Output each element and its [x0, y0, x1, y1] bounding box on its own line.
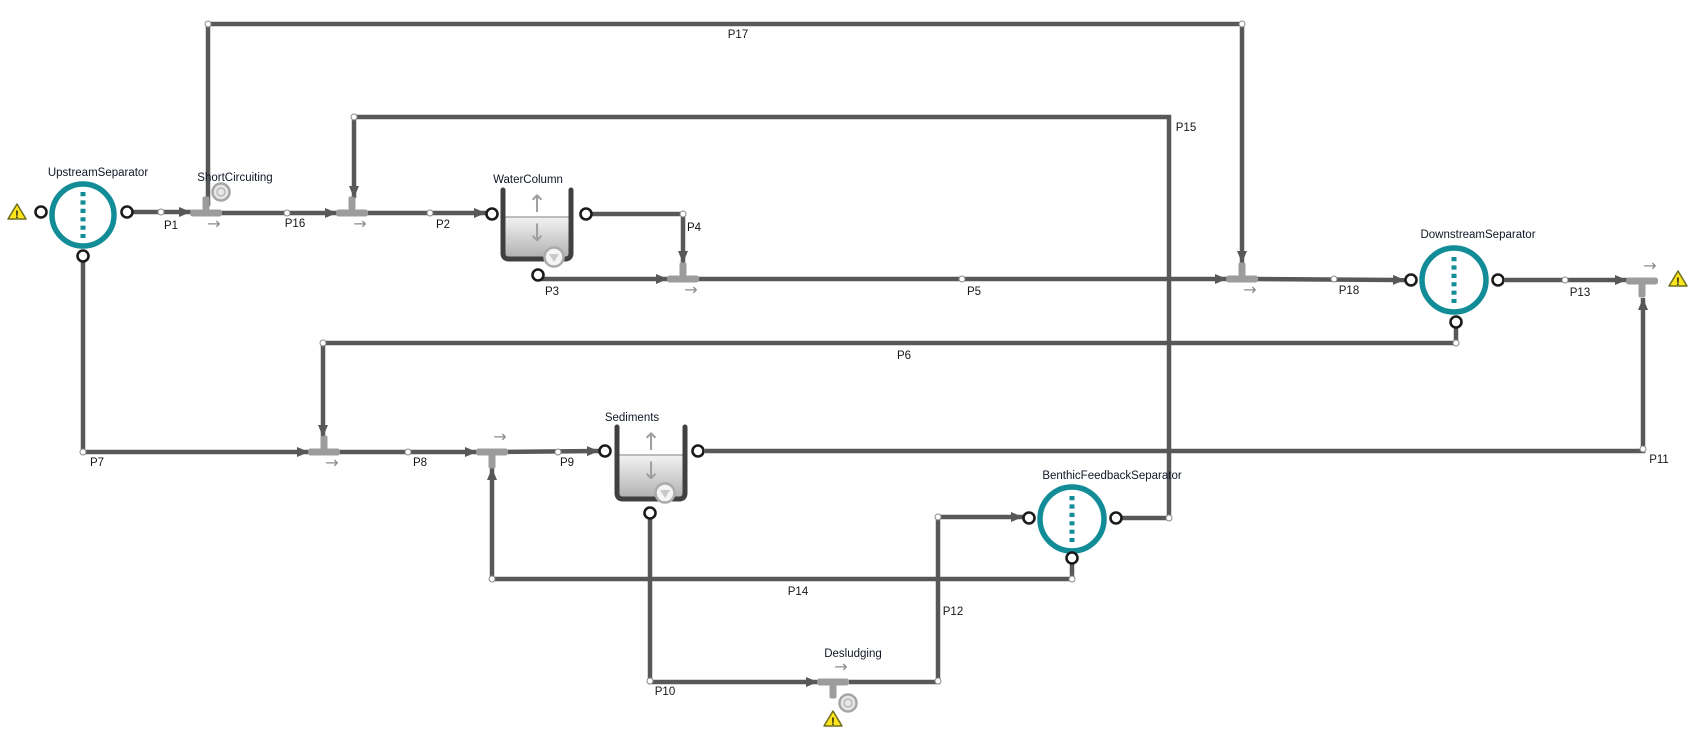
flow-direction-arrow: →	[1643, 256, 1656, 275]
pipe-P12-arrowhead	[1011, 512, 1023, 522]
downstream-separator-port-2[interactable]	[1451, 317, 1462, 328]
flow-direction-arrow: →	[1243, 280, 1256, 299]
pipe-P14-arrowhead	[487, 468, 497, 480]
water-column-valve-icon	[545, 248, 564, 267]
sediments-up-arrow-icon: ↑	[641, 428, 661, 456]
warning-outlet-icon: !	[1669, 271, 1687, 288]
pipe-P6-handle[interactable]	[1453, 340, 1459, 346]
water-column-port-2[interactable]	[533, 270, 544, 281]
downstream-separator-port-1[interactable]	[1493, 275, 1504, 286]
flow-direction-arrow: →	[207, 214, 220, 233]
pipe-P4-label: P4	[687, 222, 702, 234]
pipe-P6-label: P6	[897, 350, 911, 362]
sediments-label: Sediments	[605, 412, 660, 424]
pipe-P1-arrowhead	[179, 207, 191, 217]
pipe-P3-arrowhead	[656, 274, 668, 284]
benthic-feedback-separator-port-2[interactable]	[1067, 553, 1078, 564]
pipe-P7-arrowhead	[297, 447, 309, 457]
water-column-port-0[interactable]	[487, 209, 498, 220]
water-column-label: WaterColumn	[493, 174, 563, 186]
pipe-P11-arrowhead	[1638, 298, 1648, 310]
benthic-feedback-separator-label: BenthicFeedbackSeparator	[1042, 470, 1182, 482]
junction-junction-p13-outlet[interactable]	[1626, 278, 1658, 298]
flow-direction-arrow: →	[325, 453, 338, 472]
upstream-separator-port-2[interactable]	[78, 251, 89, 262]
warning-desludging-exclamation: !	[831, 716, 835, 728]
diagram-canvas[interactable]: →→→→→→→→↑↓↑↓UpstreamSeparatorDownstreamS…	[0, 0, 1700, 729]
pipe-P4[interactable]	[592, 214, 683, 263]
downstream-separator-label: DownstreamSeparator	[1420, 229, 1535, 241]
pipe-P5-label: P5	[967, 286, 981, 298]
pipe-P7-handle[interactable]	[80, 449, 86, 455]
warning-desludging-icon: !	[824, 711, 842, 728]
pipe-P8-label: P8	[413, 457, 427, 469]
pipe-P17-handle[interactable]	[205, 21, 211, 27]
pipe-P6[interactable]	[323, 328, 1456, 437]
pipe-P10-arrowhead	[806, 677, 818, 687]
pipe-P14-label: P14	[788, 586, 809, 598]
flow-direction-arrow: →	[493, 427, 506, 446]
pipe-P15-label: P15	[1176, 122, 1196, 134]
sediments-down-arrow-icon: ↓	[641, 457, 661, 485]
sediments-port-2[interactable]	[645, 508, 656, 519]
pipe-P17-handle[interactable]	[1239, 21, 1245, 27]
sediments-valve-icon	[656, 484, 675, 503]
upstream-separator-port-0[interactable]	[36, 207, 47, 218]
flow-direction-arrow: →	[684, 280, 697, 299]
pipe-P1-label: P1	[164, 220, 178, 232]
pipe-P14[interactable]	[492, 468, 1072, 579]
pipe-P10-label: P10	[655, 686, 675, 698]
pipe-P2-label: P2	[436, 219, 450, 231]
sediments-port-0[interactable]	[600, 446, 611, 457]
upstream-separator[interactable]	[52, 184, 114, 246]
pipe-P8-arrowhead	[465, 447, 477, 457]
water-column-port-1[interactable]	[581, 209, 592, 220]
flow-direction-arrow: →	[353, 214, 366, 233]
pipe-P4-handle[interactable]	[680, 211, 686, 217]
pipe-P10-handle[interactable]	[647, 678, 653, 684]
pipe-P18-arrowhead	[1393, 275, 1405, 285]
pipe-P2-arrowhead	[474, 208, 486, 218]
pipe-P16-arrowhead	[325, 208, 337, 218]
pipe-P11-handle[interactable]	[1640, 446, 1646, 452]
pipe-P18-handle[interactable]	[1331, 276, 1337, 282]
pipe-P1-handle[interactable]	[158, 209, 164, 215]
pipe-P14-handle[interactable]	[1069, 576, 1075, 582]
upstream-separator-port-1[interactable]	[122, 207, 133, 218]
pipe-P16-handle[interactable]	[284, 210, 290, 216]
downstream-separator-port-0[interactable]	[1406, 275, 1417, 286]
water-column-up-arrow-icon: ↑	[527, 190, 547, 218]
pipe-P18-label: P18	[1339, 285, 1359, 297]
water-column-down-arrow-icon: ↓	[527, 219, 547, 247]
pipe-P12-handle[interactable]	[935, 678, 941, 684]
short-circuiting-label: ShortCircuiting	[197, 172, 272, 184]
pipe-P6-arrowhead	[318, 425, 328, 437]
pipe-P8-handle[interactable]	[405, 449, 411, 455]
pipe-P9[interactable]	[501, 451, 599, 452]
warning-upstream-separator-icon: !	[8, 204, 26, 221]
pipe-P15-handle[interactable]	[1166, 515, 1172, 521]
pipe-P15[interactable]	[354, 117, 1169, 518]
pipe-P13-label: P13	[1570, 287, 1590, 299]
flow-diagram[interactable]: →→→→→→→→↑↓↑↓UpstreamSeparatorDownstreamS…	[0, 0, 1700, 729]
pipe-P14-handle[interactable]	[489, 576, 495, 582]
pipe-P11-label: P11	[1649, 454, 1669, 466]
junction-junction-p8-p9[interactable]	[476, 449, 508, 469]
pipe-P3[interactable]	[538, 277, 668, 279]
pipe-P18[interactable]	[1251, 279, 1405, 280]
benthic-feedback-separator-port-1[interactable]	[1111, 513, 1122, 524]
desludging-label: Desludging	[824, 648, 882, 660]
pipe-P7-label: P7	[90, 457, 104, 469]
short-circuiting-icon	[213, 184, 230, 201]
pipe-P9-arrowhead	[587, 446, 599, 456]
pipe-P9-label: P9	[560, 457, 574, 469]
warning-upstream-separator-exclamation: !	[15, 209, 19, 221]
pipe-P5-arrowhead	[1215, 274, 1227, 284]
pipe-P7[interactable]	[83, 262, 309, 452]
benthic-feedback-separator-port-0[interactable]	[1024, 513, 1035, 524]
pipe-P17-arrowhead	[1237, 251, 1247, 263]
pipe-P6-handle[interactable]	[320, 340, 326, 346]
pipe-P12-label: P12	[943, 606, 963, 618]
pipe-P3-label: P3	[545, 286, 559, 298]
pipe-P15-handle[interactable]	[351, 114, 357, 120]
benthic-feedback-separator[interactable]	[1040, 487, 1104, 551]
pipe-P13-arrowhead	[1615, 275, 1627, 285]
pipe-P17-label: P17	[728, 29, 748, 41]
pipe-P11[interactable]	[705, 298, 1643, 451]
pipe-P5-handle[interactable]	[959, 276, 965, 282]
pipe-P4-arrowhead	[678, 251, 688, 263]
pipe-P9-handle[interactable]	[555, 449, 561, 455]
pipe-P2-handle[interactable]	[427, 210, 433, 216]
pipe-P13-handle[interactable]	[1562, 277, 1568, 283]
pipe-P12-handle[interactable]	[935, 514, 941, 520]
upstream-separator-label: UpstreamSeparator	[48, 167, 149, 179]
warning-outlet-exclamation: !	[1676, 276, 1680, 288]
pipe-P10[interactable]	[650, 519, 818, 682]
downstream-separator[interactable]	[1422, 248, 1486, 312]
pipe-P15-arrowhead	[349, 186, 359, 198]
desludging-icon	[840, 695, 857, 712]
pipe-P16-label: P16	[285, 218, 305, 230]
sediments-port-1[interactable]	[693, 446, 704, 457]
